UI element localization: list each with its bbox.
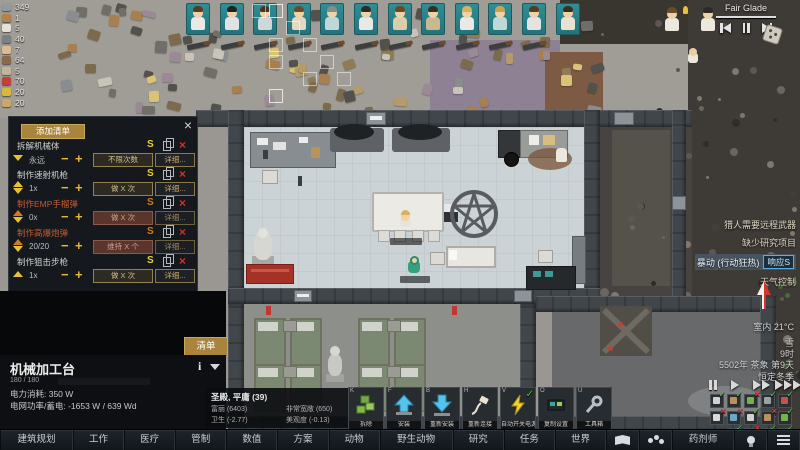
tab-bills[interactable]: 清单	[184, 337, 228, 356]
pawn-hair	[227, 6, 237, 12]
tab-野生动物[interactable]: 野生动物	[380, 430, 453, 450]
previous-track-button[interactable]	[720, 22, 731, 33]
bedside-table[interactable]	[387, 366, 401, 378]
stockpile-cell-marker	[269, 55, 283, 69]
pawn-body	[191, 17, 205, 30]
chevron-down-icon[interactable]	[210, 364, 220, 370]
tab-方案[interactable]: 方案	[277, 430, 328, 450]
check-icon: ✓	[786, 389, 794, 400]
gold-icon	[2, 88, 11, 96]
pillow	[294, 368, 314, 377]
delete-bill-button[interactable]: ×	[179, 167, 186, 181]
decrease-count-button[interactable]: −	[61, 209, 69, 224]
fueled-smithy[interactable]	[330, 128, 384, 152]
bill-details-button[interactable]: 详细...	[155, 269, 195, 283]
rimworld-screen: 34915407645702020 Fair Glade × 添加清单 拆解机械…	[0, 0, 800, 450]
resource-counter-meals: 7	[2, 44, 62, 55]
resource-count: 7	[15, 45, 20, 55]
resource-count: 20	[15, 87, 24, 97]
delete-bill-button[interactable]: ×	[179, 138, 186, 152]
copy-bill-icon[interactable]	[163, 228, 171, 238]
pawn-name-label	[390, 238, 422, 245]
tab-动物[interactable]: 动物	[329, 430, 380, 450]
tab-研究[interactable]: 研究	[453, 430, 504, 450]
machine-console[interactable]	[526, 266, 576, 290]
bill-row: 拆解机械体S×永远−+不限次数详细...	[9, 140, 197, 167]
bedside-table[interactable]	[283, 366, 297, 378]
reconnect-button[interactable]: H 重新连接	[462, 387, 498, 430]
door[interactable]	[672, 196, 686, 210]
increase-count-button[interactable]: +	[75, 180, 83, 195]
bill-row: 制作速射机枪S×1x−+做 X 次详细...	[9, 169, 197, 196]
room-stats-tooltip: 圣殿, 平庸 (39) 富丽 (6403) 非常宽敞 (650) 卫生 (-2.…	[206, 388, 356, 428]
autodoor[interactable]	[614, 112, 634, 125]
compass-north-arrow	[756, 281, 772, 311]
autodoor[interactable]	[366, 112, 386, 125]
stockpile-cell-marker	[320, 55, 334, 69]
copy-settings-button[interactable]: O 复制设置	[538, 387, 574, 430]
increase-count-button[interactable]: +	[75, 209, 83, 224]
tab-任务[interactable]: 任务	[504, 430, 555, 450]
rock-debris-dot	[732, 68, 739, 75]
check-icon: ✓	[718, 389, 726, 400]
menu-tab-icon[interactable]	[767, 430, 800, 450]
add-bill-button[interactable]: 添加清单	[21, 124, 85, 139]
wall-right	[584, 110, 600, 304]
stockpile-cell-marker	[286, 21, 300, 35]
pawn-body	[258, 17, 272, 30]
pawn-body	[225, 17, 239, 30]
tab-药剂师[interactable]: 药剂师	[672, 430, 734, 450]
song-title: Fair Glade	[698, 3, 794, 13]
alert[interactable]: 猎人需要远程武器	[724, 218, 796, 231]
decrease-count-button[interactable]: −	[61, 180, 69, 195]
sculpture[interactable]	[324, 346, 346, 384]
pawn-hair	[667, 7, 677, 13]
power-consumption: 电力消耗: 350 W	[10, 388, 73, 400]
tab-医疗[interactable]: 医疗	[124, 430, 175, 450]
rock-debris-dot	[732, 119, 740, 127]
rock-debris-dot	[792, 207, 797, 212]
people-icon	[648, 435, 664, 445]
tab-建筑规划[interactable]: 建筑规划	[0, 430, 73, 450]
rock-debris-dot	[718, 98, 721, 101]
fueled-smithy[interactable]	[392, 128, 450, 152]
hp-bar	[58, 378, 150, 385]
pause-track-button[interactable]	[743, 22, 750, 33]
leather-icon	[2, 56, 11, 64]
resource-counter-gold: 20	[2, 87, 62, 98]
check-icon: ✓	[769, 389, 777, 400]
colonist-pawn[interactable]	[354, 3, 378, 35]
tab-数值[interactable]: 数值	[226, 430, 277, 450]
stockpile-cell-marker	[337, 72, 351, 86]
resource-count: 40	[15, 34, 24, 44]
increase-count-button[interactable]: +	[75, 151, 83, 166]
resource-counter-wood: 1	[2, 13, 62, 24]
resource-counter-berries: 70	[2, 76, 62, 87]
repeat-mode-button[interactable]: 做 X 次	[93, 211, 153, 225]
rock-debris-dot	[651, 281, 656, 286]
pawn-body	[561, 17, 575, 30]
pawn-hair	[193, 6, 203, 12]
pillow	[398, 368, 418, 377]
colonist-pawn[interactable]	[522, 3, 546, 35]
rock-debris-dot	[780, 297, 784, 301]
wall-left	[228, 110, 244, 304]
chevron-up-icon[interactable]	[13, 181, 23, 187]
people-tab-icon[interactable]	[639, 430, 672, 450]
resource-count: 70	[15, 76, 24, 86]
resource-count: 349	[15, 2, 29, 12]
bill-details-button[interactable]: 详细...	[155, 153, 195, 167]
bulb-tab-icon[interactable]	[734, 430, 767, 450]
pawn-on-rock[interactable]	[660, 4, 684, 36]
inspect-panel: 机械加工台 i 180 / 180 电力消耗: 350 W 电网功率/蓄电: -…	[0, 355, 226, 430]
check-icon: ✓	[752, 406, 760, 417]
wall-lamp[interactable]	[452, 306, 457, 315]
pawn-body	[359, 17, 373, 30]
stockpile-cell-marker	[252, 4, 266, 18]
suspend-bill-button[interactable]: S	[147, 226, 154, 237]
pawn-hair	[495, 6, 505, 12]
tool-cabinet[interactable]	[246, 264, 294, 284]
cloth-icon	[2, 24, 11, 32]
rock-debris-dot	[637, 203, 644, 210]
pillow	[362, 368, 382, 377]
colonist-pawn[interactable]	[320, 3, 344, 35]
sculpture[interactable]	[250, 228, 276, 268]
bulb-icon	[747, 436, 755, 444]
suspend-bill-button[interactable]: S	[147, 197, 154, 208]
working-pawn[interactable]	[556, 148, 567, 162]
cross-icon: ×	[755, 389, 760, 399]
bedside-table[interactable]	[283, 320, 297, 332]
check-icon: ✓	[526, 389, 534, 400]
alert-respond-button[interactable]: 响应S	[763, 255, 794, 269]
stool[interactable]	[428, 230, 440, 242]
pawn-hair	[428, 6, 438, 12]
colonist-pawn[interactable]	[556, 3, 580, 35]
colonist-pawn[interactable]	[421, 3, 445, 35]
bill-row: 制作狙击步枪S×1x−+做 X 次详细...	[9, 256, 197, 283]
repeat-mode-button[interactable]: 不限次数	[93, 153, 153, 167]
stockpile-cell-marker	[303, 38, 317, 52]
rock-debris-dot	[750, 67, 757, 74]
toggle-icon	[730, 414, 737, 421]
rock-debris-dot	[697, 96, 702, 101]
reinstall-button[interactable]: B 重新安装	[424, 387, 460, 430]
decrease-count-button[interactable]: −	[61, 267, 69, 282]
selected-thing-title: 机械加工台	[10, 359, 75, 378]
bush	[785, 293, 790, 298]
pawn-name-label	[400, 276, 430, 283]
pawn-body	[460, 17, 474, 30]
song-progress-bar	[716, 16, 776, 18]
bill-row: 制作高爆炮弹S×20/20−+维持 X 个详细...	[9, 227, 197, 254]
bed[interactable]	[254, 318, 286, 366]
room-stat: 富丽 (6403)	[211, 404, 247, 414]
pawn-hair	[294, 6, 304, 12]
bill-repeat-count: 1x	[29, 271, 37, 280]
close-icon[interactable]: ×	[184, 118, 192, 132]
room-title: 圣殿, 平庸 (39)	[211, 391, 267, 403]
pillow	[258, 322, 278, 331]
resource-count: 5	[15, 23, 20, 33]
colonist-pawn[interactable]	[488, 3, 512, 35]
autodoor[interactable]	[514, 290, 532, 302]
bill-repeat-count: 20/20	[29, 242, 49, 251]
resource-counter-stone-blocks: 40	[2, 34, 62, 45]
rock-debris-dot	[601, 33, 604, 36]
cooking-pot[interactable]	[504, 152, 519, 167]
small-table[interactable]	[430, 252, 445, 265]
pillow	[362, 322, 382, 331]
bill-config-row: 1x−+做 X 次详细...	[9, 269, 197, 282]
colonist-pawn[interactable]	[455, 3, 479, 35]
toolbox-button[interactable]: U 工具箱	[576, 387, 612, 430]
wild-pawn[interactable]	[688, 48, 698, 63]
pawn-hair	[529, 6, 539, 12]
pawn-body	[527, 17, 541, 30]
seated-pawn[interactable]	[400, 212, 411, 227]
rock-debris-dot	[706, 176, 709, 179]
rock-debris-dot	[777, 86, 785, 94]
pawn-body	[493, 17, 507, 30]
room-stat: 美观度 (-0.13)	[286, 415, 330, 425]
stone-blocks-icon	[2, 35, 11, 43]
check-icon: ✓	[786, 406, 794, 417]
resource-counter-fabric: 20	[2, 97, 62, 108]
ritual-spot[interactable]	[448, 188, 500, 240]
colonist-pawn[interactable]	[220, 3, 244, 35]
bill-config-row: 0x−+做 X 次详细...	[9, 211, 197, 224]
delete-bill-button[interactable]: ×	[179, 225, 186, 239]
delete-bill-button[interactable]: ×	[179, 196, 186, 210]
bill-details-button[interactable]: 详细...	[155, 211, 195, 225]
pawn-hair	[462, 6, 472, 12]
bill-config-row: 永远−+不限次数详细...	[9, 153, 197, 166]
toggle-icon	[713, 414, 720, 421]
bill-config-row: 1x−+做 X 次详细...	[9, 182, 197, 195]
pawn-body	[325, 17, 339, 30]
cross-icon: ×	[738, 406, 743, 416]
textiles-icon	[2, 67, 11, 75]
toggle-icon	[747, 397, 754, 404]
small-table[interactable]	[262, 170, 278, 184]
pawn-body	[426, 17, 440, 30]
hp-value: 180 / 180	[10, 377, 39, 384]
berries-icon	[2, 77, 11, 85]
toggle-icon	[764, 414, 771, 421]
rock-debris-dot	[686, 153, 692, 159]
room-stat: 非常宽敞 (650)	[286, 404, 332, 414]
rock-debris-dot	[730, 148, 738, 156]
tab-世界[interactable]: 世界	[555, 430, 606, 450]
bill-repeat-count: 1x	[29, 184, 37, 193]
bill-config-row: 20/20−+维持 X 个详细...	[9, 240, 197, 253]
bed[interactable]	[358, 318, 390, 366]
pillow	[294, 322, 314, 331]
resource-count: 5	[15, 66, 20, 76]
stockpile-cell-marker	[269, 38, 283, 52]
trap-structure[interactable]	[600, 306, 652, 356]
resource-count: 64	[15, 55, 24, 65]
decrease-count-button[interactable]: −	[61, 238, 69, 253]
chevron-up-icon[interactable]	[13, 239, 23, 245]
delete-bill-button[interactable]: ×	[179, 254, 186, 268]
repeat-mode-button[interactable]: 做 X 次	[93, 182, 153, 196]
increase-count-button[interactable]: +	[75, 238, 83, 253]
counter[interactable]	[250, 132, 336, 168]
menu-icon	[777, 435, 790, 437]
indoor-temperature: 室内 21°C	[753, 320, 794, 333]
main-tab-bar: 建筑规划工作医疗管制数值方案动物野生动物研究任务世界药剂师	[0, 429, 800, 450]
stockpile-cell-marker	[303, 72, 317, 86]
fabric-icon	[2, 99, 11, 107]
resource-counter-steel: 349	[2, 2, 62, 13]
bed[interactable]	[446, 246, 496, 268]
pillow	[398, 322, 418, 331]
check-icon: ✓	[735, 389, 743, 400]
rock-debris-dot	[676, 68, 680, 72]
chevron-up-icon[interactable]	[13, 210, 23, 216]
copy-bill-icon[interactable]	[163, 257, 171, 267]
wall	[536, 296, 776, 312]
suspend-bill-button[interactable]: S	[147, 168, 154, 179]
stool[interactable]	[378, 230, 390, 242]
copy-bill-icon[interactable]	[163, 199, 171, 209]
bill-details-button[interactable]: 详细...	[155, 240, 195, 254]
copy-bill-icon[interactable]	[163, 141, 171, 151]
rock-debris-dot	[773, 118, 777, 122]
cross-icon: ×	[772, 406, 777, 416]
pillow	[258, 368, 278, 377]
book-icon	[615, 435, 630, 445]
pawn-hair	[395, 6, 405, 12]
resource-readout: 34915407645702020	[2, 2, 62, 108]
alert-label: 暴动 (行动狂热)	[697, 256, 760, 269]
rock-debris-dot	[630, 225, 635, 230]
small-table[interactable]	[538, 250, 553, 263]
bill-repeat-count: 永远	[29, 155, 45, 166]
autodoor[interactable]	[294, 290, 312, 302]
grid-power: 电网功率/蓄电: -1653 W / 639 Wd	[10, 400, 137, 412]
chevron-down-icon[interactable]	[13, 155, 23, 161]
pawn-body	[393, 17, 407, 30]
stockpile-cell-marker	[269, 4, 283, 18]
lamp[interactable]	[298, 176, 302, 186]
book-tab-icon[interactable]	[606, 430, 639, 450]
bill-name: 拆解机械体	[17, 140, 60, 152]
rock-debris-dot	[699, 106, 704, 111]
rock-debris-dot	[628, 215, 635, 222]
suspend-bill-button[interactable]: S	[147, 139, 154, 150]
resource-count: 20	[15, 98, 24, 108]
rock-debris-dot	[790, 191, 796, 197]
decrease-count-button[interactable]: −	[61, 151, 69, 166]
stockpile-cell-marker	[269, 89, 283, 103]
wall-lamp[interactable]	[266, 306, 271, 315]
wood-icon	[2, 14, 11, 22]
tab-工作[interactable]: 工作	[73, 430, 124, 450]
pawn-hair	[361, 6, 371, 12]
colonist-pawn[interactable]	[388, 3, 412, 35]
suspend-bill-button[interactable]: S	[147, 255, 154, 266]
info-icon[interactable]: i	[198, 359, 201, 374]
cross-icon: ×	[721, 406, 726, 416]
resource-counter-leather: 64	[2, 55, 62, 66]
chevron-down-icon[interactable]	[13, 217, 23, 223]
alert-highlighted[interactable]: 暴动 (行动狂热)响应S	[695, 254, 796, 270]
install-button[interactable]: F 安装	[386, 387, 422, 430]
room-stat: 卫生 (-2.77)	[211, 415, 248, 425]
meals-icon	[2, 46, 11, 54]
repeat-mode-button[interactable]: 做 X 次	[93, 269, 153, 283]
alert[interactable]: 缺少研究项目	[742, 236, 796, 249]
steel-icon	[2, 3, 11, 11]
repeat-mode-button[interactable]: 维持 X 个	[93, 240, 153, 254]
chevron-up-icon[interactable]	[13, 271, 23, 277]
gizmo-bar: K 拆除 F 安装 B 重新安装 H 重新连接 V ✓ 自动开关电源 O	[348, 387, 612, 430]
tab-管制[interactable]: 管制	[175, 430, 226, 450]
bill-repeat-count: 0x	[29, 213, 37, 222]
bill-row: 制作EMP手榴弹S×0x−+做 X 次详细...	[9, 198, 197, 225]
rock-debris-dot	[740, 113, 745, 118]
deconstruct-button[interactable]: K 拆除	[348, 387, 384, 430]
resource-counter-textiles: 5	[2, 66, 62, 77]
rock-debris-dot	[767, 161, 774, 168]
pawn-body	[665, 18, 679, 31]
bills-window: × 添加清单 拆解机械体S×永远−+不限次数详细...制作速射机枪S×1x−+做…	[8, 116, 198, 294]
chevron-down-icon[interactable]	[13, 246, 23, 252]
rock-debris-dot	[662, 236, 665, 239]
toggle-power-button[interactable]: V ✓ 自动开关电源	[500, 387, 536, 430]
resource-count: 1	[15, 13, 20, 23]
alert-stack: 猎人需要远程武器缺少研究项目暴动 (行动狂热)响应S天气控制	[695, 218, 796, 288]
rock-debris-dot	[703, 141, 709, 147]
pawn-hair	[563, 6, 573, 12]
play-setting-toggle[interactable]: ×	[710, 411, 724, 425]
increase-count-button[interactable]: +	[75, 267, 83, 282]
bill-details-button[interactable]: 详细...	[155, 182, 195, 196]
colonist-pawn[interactable]	[186, 3, 210, 35]
resource-counter-cloth: 5	[2, 23, 62, 34]
pawn-hair	[327, 6, 337, 12]
hooded-pawn[interactable]	[408, 256, 420, 273]
bedside-table[interactable]	[387, 320, 401, 332]
copy-bill-icon[interactable]	[163, 170, 171, 180]
chevron-down-icon[interactable]	[13, 188, 23, 194]
